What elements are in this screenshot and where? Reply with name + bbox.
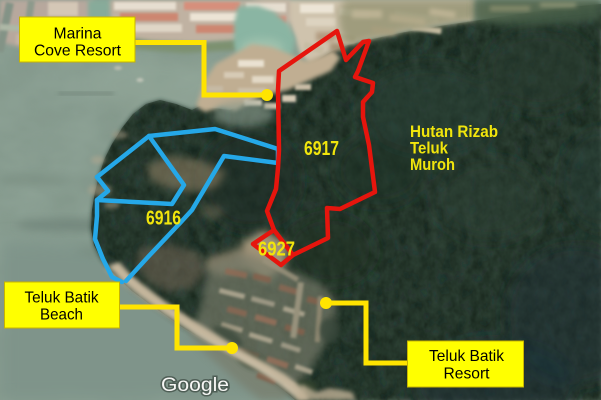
svg-text:Muroh: Muroh — [410, 155, 455, 174]
svg-text:Teluk Batik: Teluk Batik — [429, 348, 505, 365]
svg-text:Marina: Marina — [54, 26, 102, 43]
svg-text:Google: Google — [161, 375, 229, 396]
svg-text:Teluk Batik: Teluk Batik — [25, 290, 100, 307]
svg-text:6917: 6917 — [304, 138, 339, 160]
svg-text:6927: 6927 — [258, 239, 295, 261]
svg-text:Cove Resort: Cove Resort — [34, 43, 122, 60]
svg-text:Resort: Resort — [444, 366, 491, 383]
svg-text:6916: 6916 — [146, 208, 181, 230]
svg-text:Beach: Beach — [40, 307, 83, 324]
